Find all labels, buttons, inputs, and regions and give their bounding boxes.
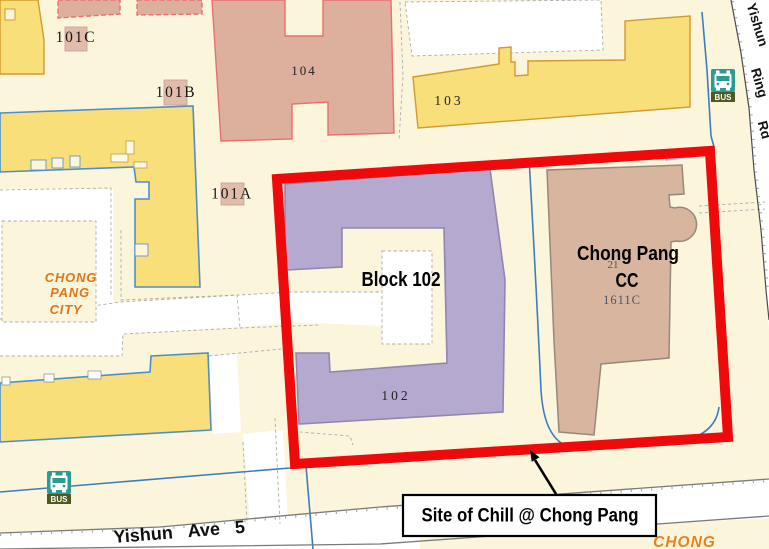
- svg-text:101A: 101A: [211, 186, 253, 203]
- svg-text:103: 103: [434, 93, 463, 108]
- svg-text:CC: CC: [616, 269, 639, 292]
- svg-text:104: 104: [291, 63, 317, 78]
- svg-text:BUS: BUS: [715, 93, 733, 102]
- svg-text:Chong Pang: Chong Pang: [577, 242, 679, 265]
- svg-text:Site of Chill @ Chong Pang: Site of Chill @ Chong Pang: [422, 506, 639, 527]
- svg-text:CITY: CITY: [50, 302, 83, 317]
- svg-text:CHONG: CHONG: [45, 270, 97, 285]
- svg-text:101C: 101C: [56, 29, 97, 46]
- svg-text:CHONG: CHONG: [653, 534, 716, 549]
- svg-text:PANG: PANG: [50, 285, 90, 300]
- svg-text:101B: 101B: [156, 84, 197, 101]
- svg-text:Block 102: Block 102: [362, 269, 441, 291]
- svg-text:102: 102: [381, 388, 410, 403]
- svg-text:1611C: 1611C: [603, 293, 641, 307]
